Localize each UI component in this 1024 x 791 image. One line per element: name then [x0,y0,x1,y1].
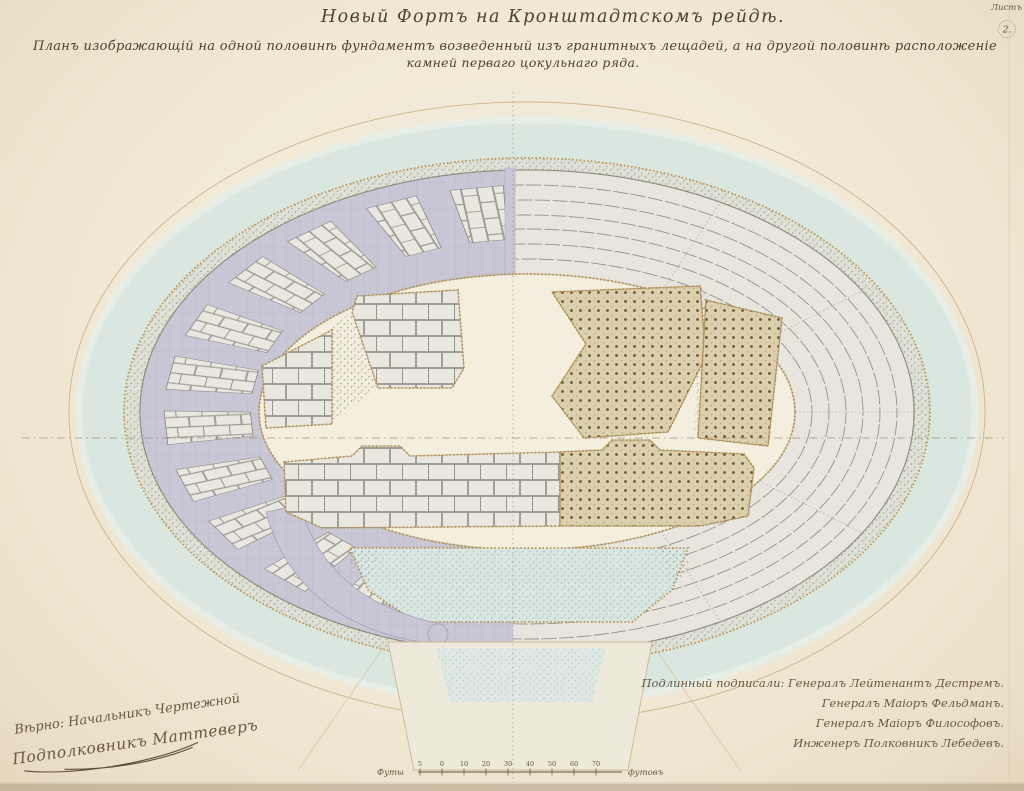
platform-socle-right-small [698,300,782,446]
scale-tick-label: 50 [548,760,556,768]
page-number: 2. [1001,25,1011,36]
scale-right-label: футовъ [628,768,664,778]
corner-note: Листъ [990,3,1022,13]
scale-left-label: Футы [377,768,404,778]
ramp-tip [428,624,448,644]
drawing-sheet: Новый Фортъ на Кронштадтскомъ рейдѣ. Пла… [0,0,1024,791]
scale-tick-label: 20 [482,760,490,768]
scale-tick-label: 70 [592,760,600,768]
landing-shoal-texture [436,648,606,702]
scale-tick-label: 0 [440,760,444,768]
subtitle-line-1: Планъ изображающій на одной половинѣ фун… [32,39,997,54]
platform-lower-right [560,440,754,526]
scale-tick-label: 10 [460,760,468,768]
scale-tick-label: 60 [570,760,578,768]
certification-block-left: Вѣрно: Начальникъ Чертежной Подполковник… [7,689,261,780]
subtitle-line-2: камней перваго цокульнаго ряда. [406,55,639,70]
signature-block-right: Подлинный подписали: Генералъ Лейтенантъ… [641,676,1004,750]
scale-tick-label: 30 [504,760,512,768]
fort-plan-svg: Новый Фортъ на Кронштадтскомъ рейдѣ. Пла… [0,0,1024,791]
top-junction-pier [505,168,515,276]
page-title: Новый Фортъ на Кронштадтскомъ рейдѣ. [320,7,785,27]
harbor-basin-texture [350,548,688,622]
scale-tick-label: 5 [418,760,422,768]
signature-line: Генералъ Маіоръ Фельдманъ. [821,696,1004,710]
sheet-bottom-edge [0,784,1024,791]
signature-line: Инженеръ Полковникъ Лебедевъ. [792,736,1004,750]
signature-line: Подлинный подписали: Генералъ Лейтенантъ… [641,676,1004,690]
signature-line: Генералъ Маіоръ Философовъ. [815,716,1004,730]
scale-tick-label: 40 [526,760,534,768]
